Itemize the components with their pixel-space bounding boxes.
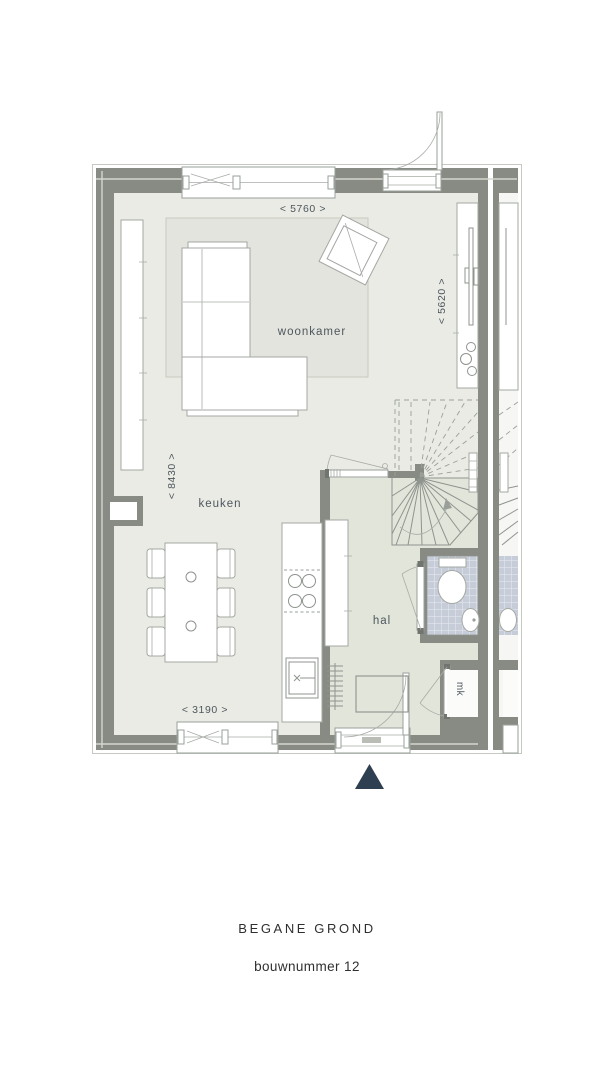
floor-name-title: BEGANE GROND <box>238 921 375 936</box>
top-window <box>182 167 335 198</box>
label-hallway: hal <box>373 615 391 627</box>
dimension-top: < 5760 > <box>280 203 326 215</box>
sofa-body-vertical <box>182 248 250 357</box>
bottom-window-mullion <box>178 730 184 744</box>
kitchen-counter <box>282 523 322 722</box>
dining-chair <box>217 588 235 617</box>
hall-wardrobe <box>325 520 348 646</box>
wall-left <box>96 193 114 750</box>
toilet-room <box>427 556 479 635</box>
toilet-cistern <box>439 558 466 567</box>
dining-chair <box>217 549 235 578</box>
left-wall-cabinet <box>121 220 143 470</box>
kitchen-island <box>282 523 322 722</box>
bottom-window <box>177 722 278 753</box>
entrance-marker-triangle <box>355 764 384 789</box>
bottom-window-mullion <box>272 730 277 744</box>
footer: BEGANE GROND bouwnummer 12 <box>238 921 375 974</box>
garden-door-swing-arc <box>383 113 440 170</box>
garden-door-post <box>436 174 441 188</box>
wall-bottom <box>96 735 518 750</box>
wall-passage-stub <box>388 471 417 478</box>
floorplan-drawing: woonkamer keuken hal mk < 5760 > < 5620 … <box>0 0 614 1092</box>
basin-tap <box>472 618 475 621</box>
kitchen-hall-door-leaf <box>327 470 388 477</box>
door-cap <box>418 561 424 567</box>
neighbor-baluster-strip <box>500 453 508 492</box>
neighbor-cabinet <box>499 203 518 390</box>
neighbor-mk-interior <box>503 670 518 717</box>
wall-mk-bottom <box>440 717 478 735</box>
label-kitchen: keuken <box>198 498 241 510</box>
garden-door-post <box>383 174 388 188</box>
dining-table <box>165 543 217 662</box>
wall-wc-bottom <box>420 635 499 643</box>
hand-basin <box>462 609 479 632</box>
dining-chair <box>147 588 165 617</box>
label-living-room: woonkamer <box>277 326 346 338</box>
dining-set <box>147 543 235 662</box>
top-window-mullion <box>233 176 240 189</box>
unit-number-subtitle: bouwnummer 12 <box>254 959 360 974</box>
neighbor-hand-basin <box>500 609 517 632</box>
door-cap <box>325 469 329 478</box>
top-window-mullion <box>183 176 189 189</box>
dimension-left: < 8430 > <box>166 453 178 499</box>
dimension-bottom: < 3190 > <box>182 704 228 716</box>
floorplan-page: woonkamer keuken hal mk < 5760 > < 5620 … <box>0 0 614 1092</box>
bottom-window-mullion <box>222 730 228 744</box>
garden-door <box>383 112 442 191</box>
sofa-front-cushion <box>187 410 298 416</box>
party-wall-cavity <box>488 168 493 750</box>
neighbor-mk-wall <box>499 660 518 670</box>
toilet-bowl <box>438 571 466 604</box>
neighbor-front-door <box>503 725 518 753</box>
top-window-mullion <box>328 176 334 189</box>
dining-chair <box>147 549 165 578</box>
front-door-letterbox <box>362 737 381 743</box>
label-meter-closet: mk <box>454 682 465 697</box>
front-door-post <box>336 732 341 748</box>
wall-wc-top <box>420 548 499 556</box>
dining-chair <box>147 627 165 656</box>
garden-door-frame <box>383 170 441 191</box>
sofa-body-chaise <box>182 357 307 410</box>
dimension-right: < 5620 > <box>436 278 448 324</box>
wall-niche-opening <box>110 502 137 520</box>
dining-chair <box>217 627 235 656</box>
stair-baluster-strip <box>469 453 477 492</box>
door-cap <box>444 664 450 669</box>
